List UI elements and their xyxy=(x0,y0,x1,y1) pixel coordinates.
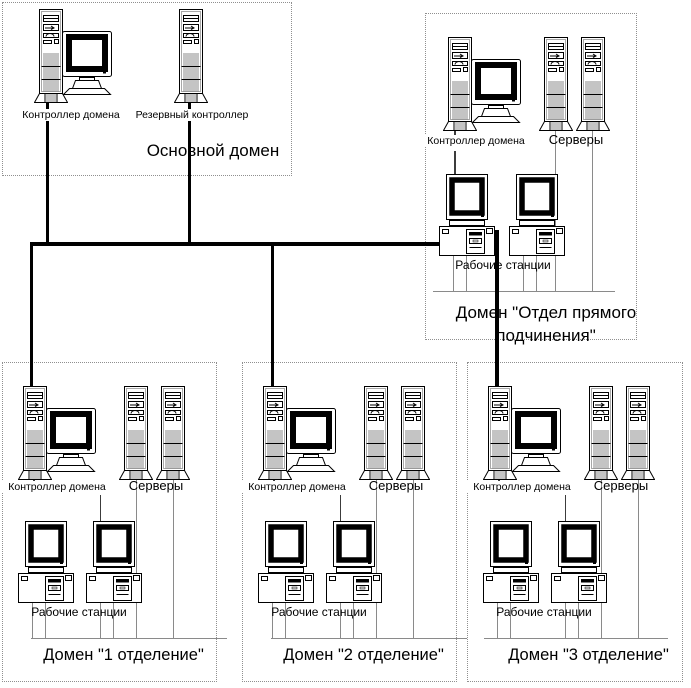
server-tower-icon xyxy=(584,386,618,482)
server-tower-icon xyxy=(156,386,190,482)
dept-domain-title-line1: Домен "Отдел прямого xyxy=(441,303,651,323)
backbone-line xyxy=(30,242,498,246)
branch3-controller-label: Контроллер домена xyxy=(466,481,578,493)
branch2-drop-line xyxy=(271,244,274,386)
backup-controller-icon xyxy=(174,9,208,105)
lan-bus-line xyxy=(271,638,467,639)
server-link-line xyxy=(638,480,639,639)
server-link-line xyxy=(592,131,593,291)
workstation-icon xyxy=(258,521,314,604)
workstation-icon xyxy=(439,174,495,257)
dept-controller-label: Контроллер домена xyxy=(421,135,531,147)
dept-servers-label: Серверы xyxy=(531,133,621,148)
lan-bus-line xyxy=(484,638,668,639)
controller-workstation-link-line xyxy=(565,495,566,522)
server-tower-icon xyxy=(359,386,393,482)
lan-bus-line xyxy=(433,291,615,292)
dept-domain-title-line2: подчинения" xyxy=(441,326,651,346)
domain-controller-icon xyxy=(258,386,336,482)
workstation-icon xyxy=(18,521,74,604)
branch1-workstations-label: Рабочие станции xyxy=(23,606,135,620)
domain-controller-icon xyxy=(443,37,521,133)
domain-controller-icon xyxy=(18,386,96,482)
domain-controller-icon xyxy=(34,9,112,105)
dept-workstations-label: Рабочие станции xyxy=(447,259,559,273)
server-tower-icon xyxy=(576,37,610,133)
dept-domain-box: Контроллер домена Серверы Рабочие станци… xyxy=(425,13,637,340)
server-link-line xyxy=(173,480,174,639)
branch1-domain-title: Домен "1 отделение" xyxy=(21,646,226,665)
main-domain-title: Основной домен xyxy=(108,141,318,161)
branch1-servers-label: Серверы xyxy=(111,479,201,494)
lan-bus-line xyxy=(31,638,227,639)
server-tower-icon xyxy=(119,386,153,482)
branch2-domain-title: Домен "2 отделение" xyxy=(261,646,466,665)
main-controller-label: Контроллер домена xyxy=(9,109,133,121)
server-tower-icon xyxy=(396,386,430,482)
controller-workstation-link-line xyxy=(340,495,341,522)
workstation-icon xyxy=(86,521,142,604)
workstation-icon xyxy=(326,521,382,604)
branch3-domain-title: Домен "3 отделение" xyxy=(486,646,691,665)
domain-controller-icon xyxy=(483,386,561,482)
branch3-workstations-label: Рабочие станции xyxy=(488,606,600,620)
branch2-workstations-label: Рабочие станции xyxy=(263,606,375,620)
controller-workstation-link-line xyxy=(100,495,101,522)
server-link-line xyxy=(413,480,414,639)
server-tower-icon xyxy=(621,386,655,482)
branch3-drop-line xyxy=(495,230,499,386)
branch1-drop-line xyxy=(30,244,33,386)
workstation-icon xyxy=(483,521,539,604)
branch2-controller-label: Контроллер домена xyxy=(241,481,353,493)
workstation-icon xyxy=(551,521,607,604)
branch-domain-1-box: Контроллер домена Серверы Рабочие станци… xyxy=(2,362,217,682)
workstation-icon xyxy=(509,174,565,257)
controller-backbone-link-line xyxy=(46,102,49,242)
branch1-controller-label: Контроллер домена xyxy=(1,481,113,493)
branch3-servers-label: Серверы xyxy=(576,479,666,494)
server-tower-icon xyxy=(539,37,573,133)
branch-domain-2-box: Контроллер домена Серверы Рабочие станци… xyxy=(242,362,457,682)
backup-backbone-link-line xyxy=(188,102,191,242)
network-domain-diagram: Контроллер домена Резервный контроллер О… xyxy=(0,0,691,688)
branch-domain-3-box: Контроллер домена Серверы Рабочие станци… xyxy=(467,362,683,682)
backup-controller-label: Резервный контроллер xyxy=(129,109,255,121)
branch2-servers-label: Серверы xyxy=(351,479,441,494)
